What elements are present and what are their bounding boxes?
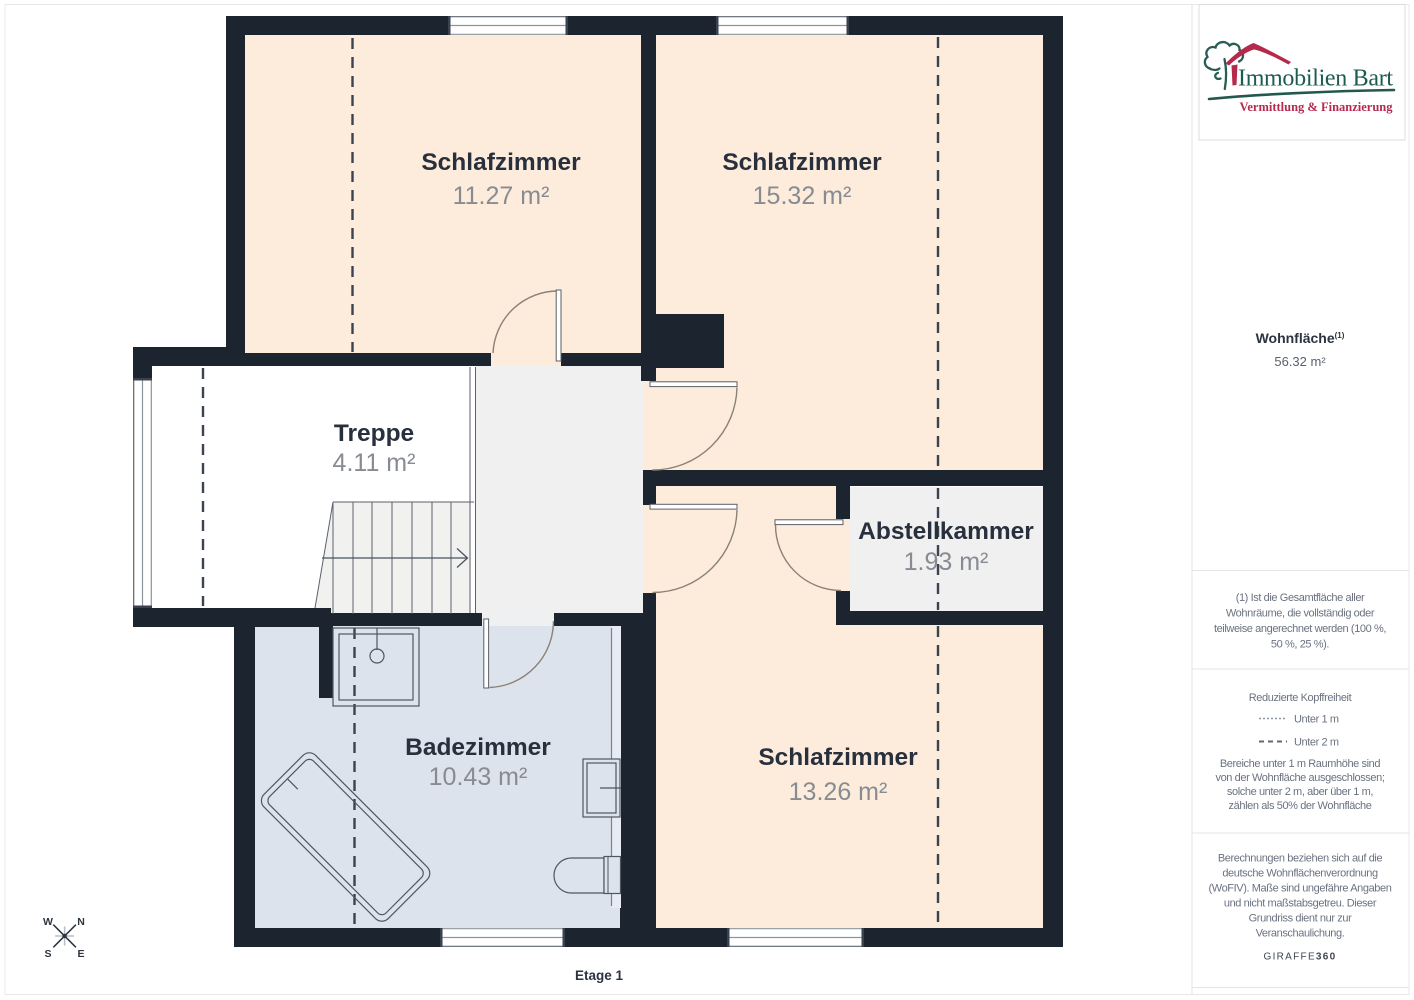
- svg-text:56.32 m²: 56.32 m²: [1274, 354, 1326, 369]
- svg-text:Bereiche unter 1 m Raumhöhe si: Bereiche unter 1 m Raumhöhe sind: [1220, 758, 1381, 770]
- svg-text:von der Wohnfläche ausgeschlos: von der Wohnfläche ausgeschlossen;: [1215, 772, 1384, 784]
- svg-text:Wohnfläche(1): Wohnfläche(1): [1256, 330, 1345, 346]
- svg-text:1.93 m²: 1.93 m²: [904, 548, 989, 576]
- svg-text:und nicht maßstabsgetreu. Dies: und nicht maßstabsgetreu. Dieser: [1224, 898, 1377, 910]
- svg-text:Vermittlung & Finanzierung: Vermittlung & Finanzierung: [1239, 100, 1393, 114]
- svg-text:Etage 1: Etage 1: [575, 968, 624, 983]
- svg-text:50 %, 25 %).: 50 %, 25 %).: [1271, 639, 1330, 651]
- svg-text:Veranschaulichung.: Veranschaulichung.: [1256, 928, 1345, 940]
- svg-text:Badezimmer: Badezimmer: [405, 734, 551, 761]
- svg-text:11.27 m²: 11.27 m²: [453, 182, 550, 210]
- svg-text:4.11 m²: 4.11 m²: [333, 449, 416, 477]
- svg-text:E: E: [77, 948, 84, 960]
- svg-text:10.43 m²: 10.43 m²: [429, 763, 528, 791]
- svg-text:S: S: [44, 948, 51, 960]
- svg-text:Schlafzimmer: Schlafzimmer: [421, 149, 581, 176]
- svg-text:Immobilien Bart: Immobilien Bart: [1238, 66, 1393, 92]
- svg-text:Wohnräume, die vollständig ode: Wohnräume, die vollständig oder: [1226, 608, 1375, 620]
- svg-text:Unter 2 m: Unter 2 m: [1294, 737, 1339, 749]
- svg-text:N: N: [77, 916, 85, 928]
- svg-text:Treppe: Treppe: [334, 420, 414, 447]
- svg-text:(1) Ist die Gesamtfläche aller: (1) Ist die Gesamtfläche aller: [1236, 592, 1365, 604]
- svg-text:Abstellkammer: Abstellkammer: [858, 518, 1034, 545]
- svg-text:solche unter 2 m, aber über 1: solche unter 2 m, aber über 1 m,: [1227, 786, 1374, 798]
- svg-text:Grundriss dient nur zur: Grundriss dient nur zur: [1249, 913, 1352, 925]
- svg-text:Berechnungen beziehen sich auf: Berechnungen beziehen sich auf die: [1218, 853, 1383, 865]
- svg-text:W: W: [43, 916, 53, 928]
- svg-text:(WoFIV). Maße sind ungefähre A: (WoFIV). Maße sind ungefähre Angaben: [1209, 883, 1392, 895]
- svg-text:Unter 1 m: Unter 1 m: [1294, 714, 1339, 726]
- svg-text:deutsche Wohnflächenverordnung: deutsche Wohnflächenverordnung: [1222, 868, 1378, 880]
- svg-text:zählen als 50% der Wohnfläche: zählen als 50% der Wohnfläche: [1229, 800, 1372, 812]
- svg-text:15.32 m²: 15.32 m²: [753, 182, 852, 210]
- svg-text:GIRAFFE360: GIRAFFE360: [1263, 952, 1336, 963]
- svg-text:Reduzierte Kopffreiheit: Reduzierte Kopffreiheit: [1249, 692, 1352, 704]
- svg-text:teilweise angerechnet werden (: teilweise angerechnet werden (100 %,: [1214, 623, 1386, 635]
- svg-text:Schlafzimmer: Schlafzimmer: [722, 149, 882, 176]
- svg-text:Schlafzimmer: Schlafzimmer: [758, 744, 918, 771]
- svg-text:13.26 m²: 13.26 m²: [789, 778, 888, 806]
